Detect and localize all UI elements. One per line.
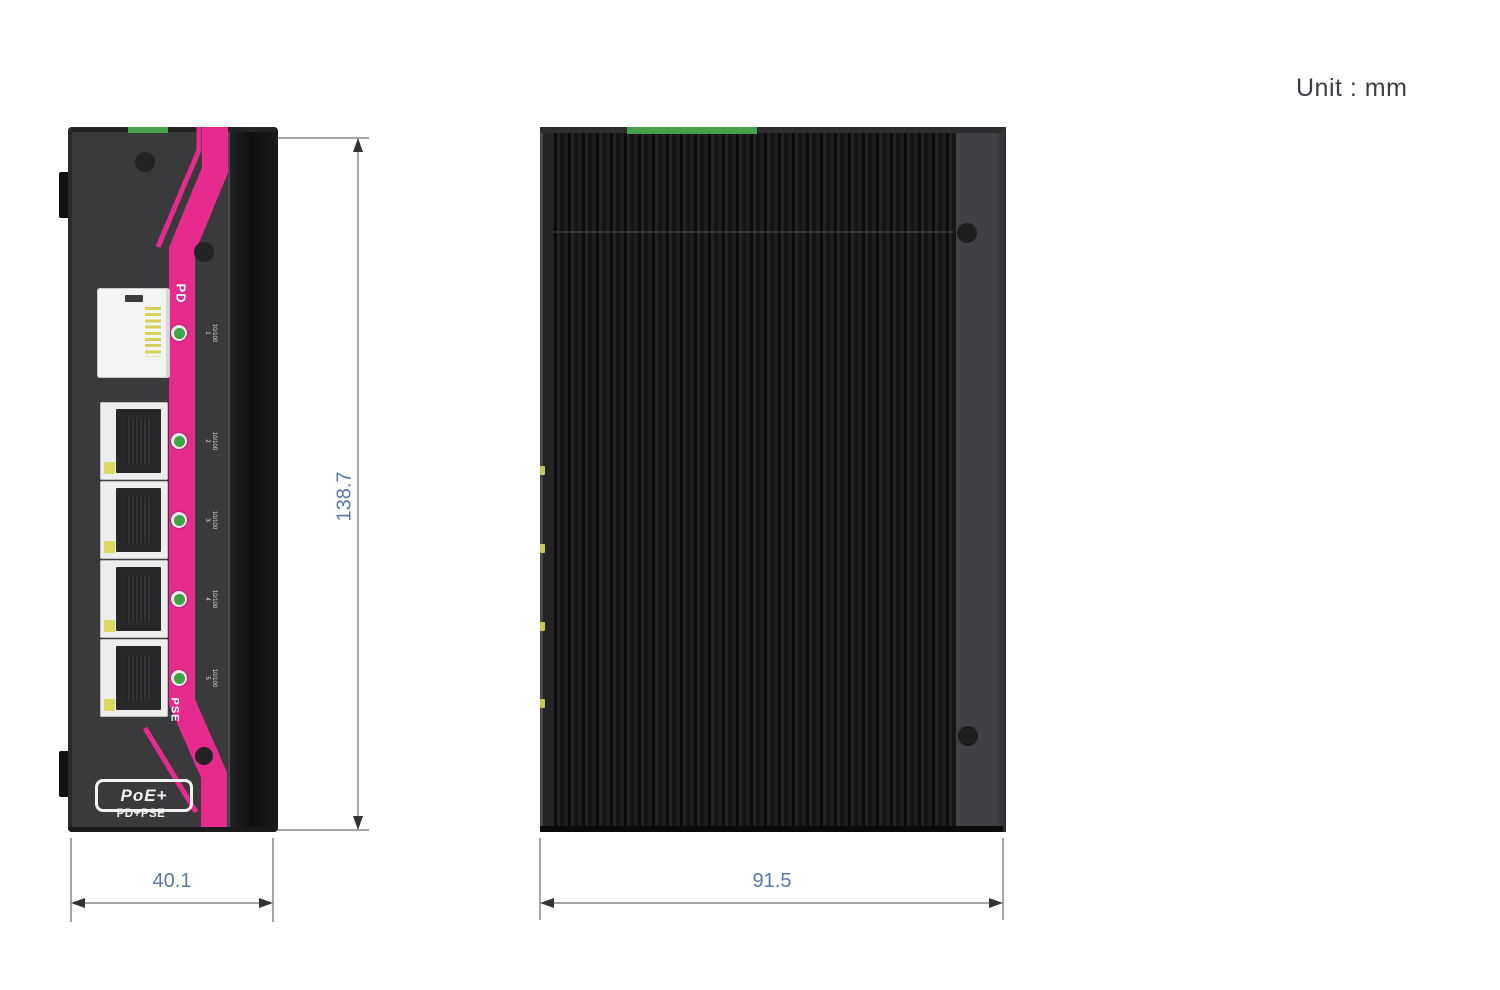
dimension-drawing: Unit : mm PD PSE	[0, 0, 1500, 990]
width-dimension: 40.1	[137, 870, 207, 893]
depth-dimension: 91.5	[737, 870, 807, 893]
dimension-lines	[0, 0, 1500, 990]
height-dimension: 138.7	[334, 462, 357, 532]
